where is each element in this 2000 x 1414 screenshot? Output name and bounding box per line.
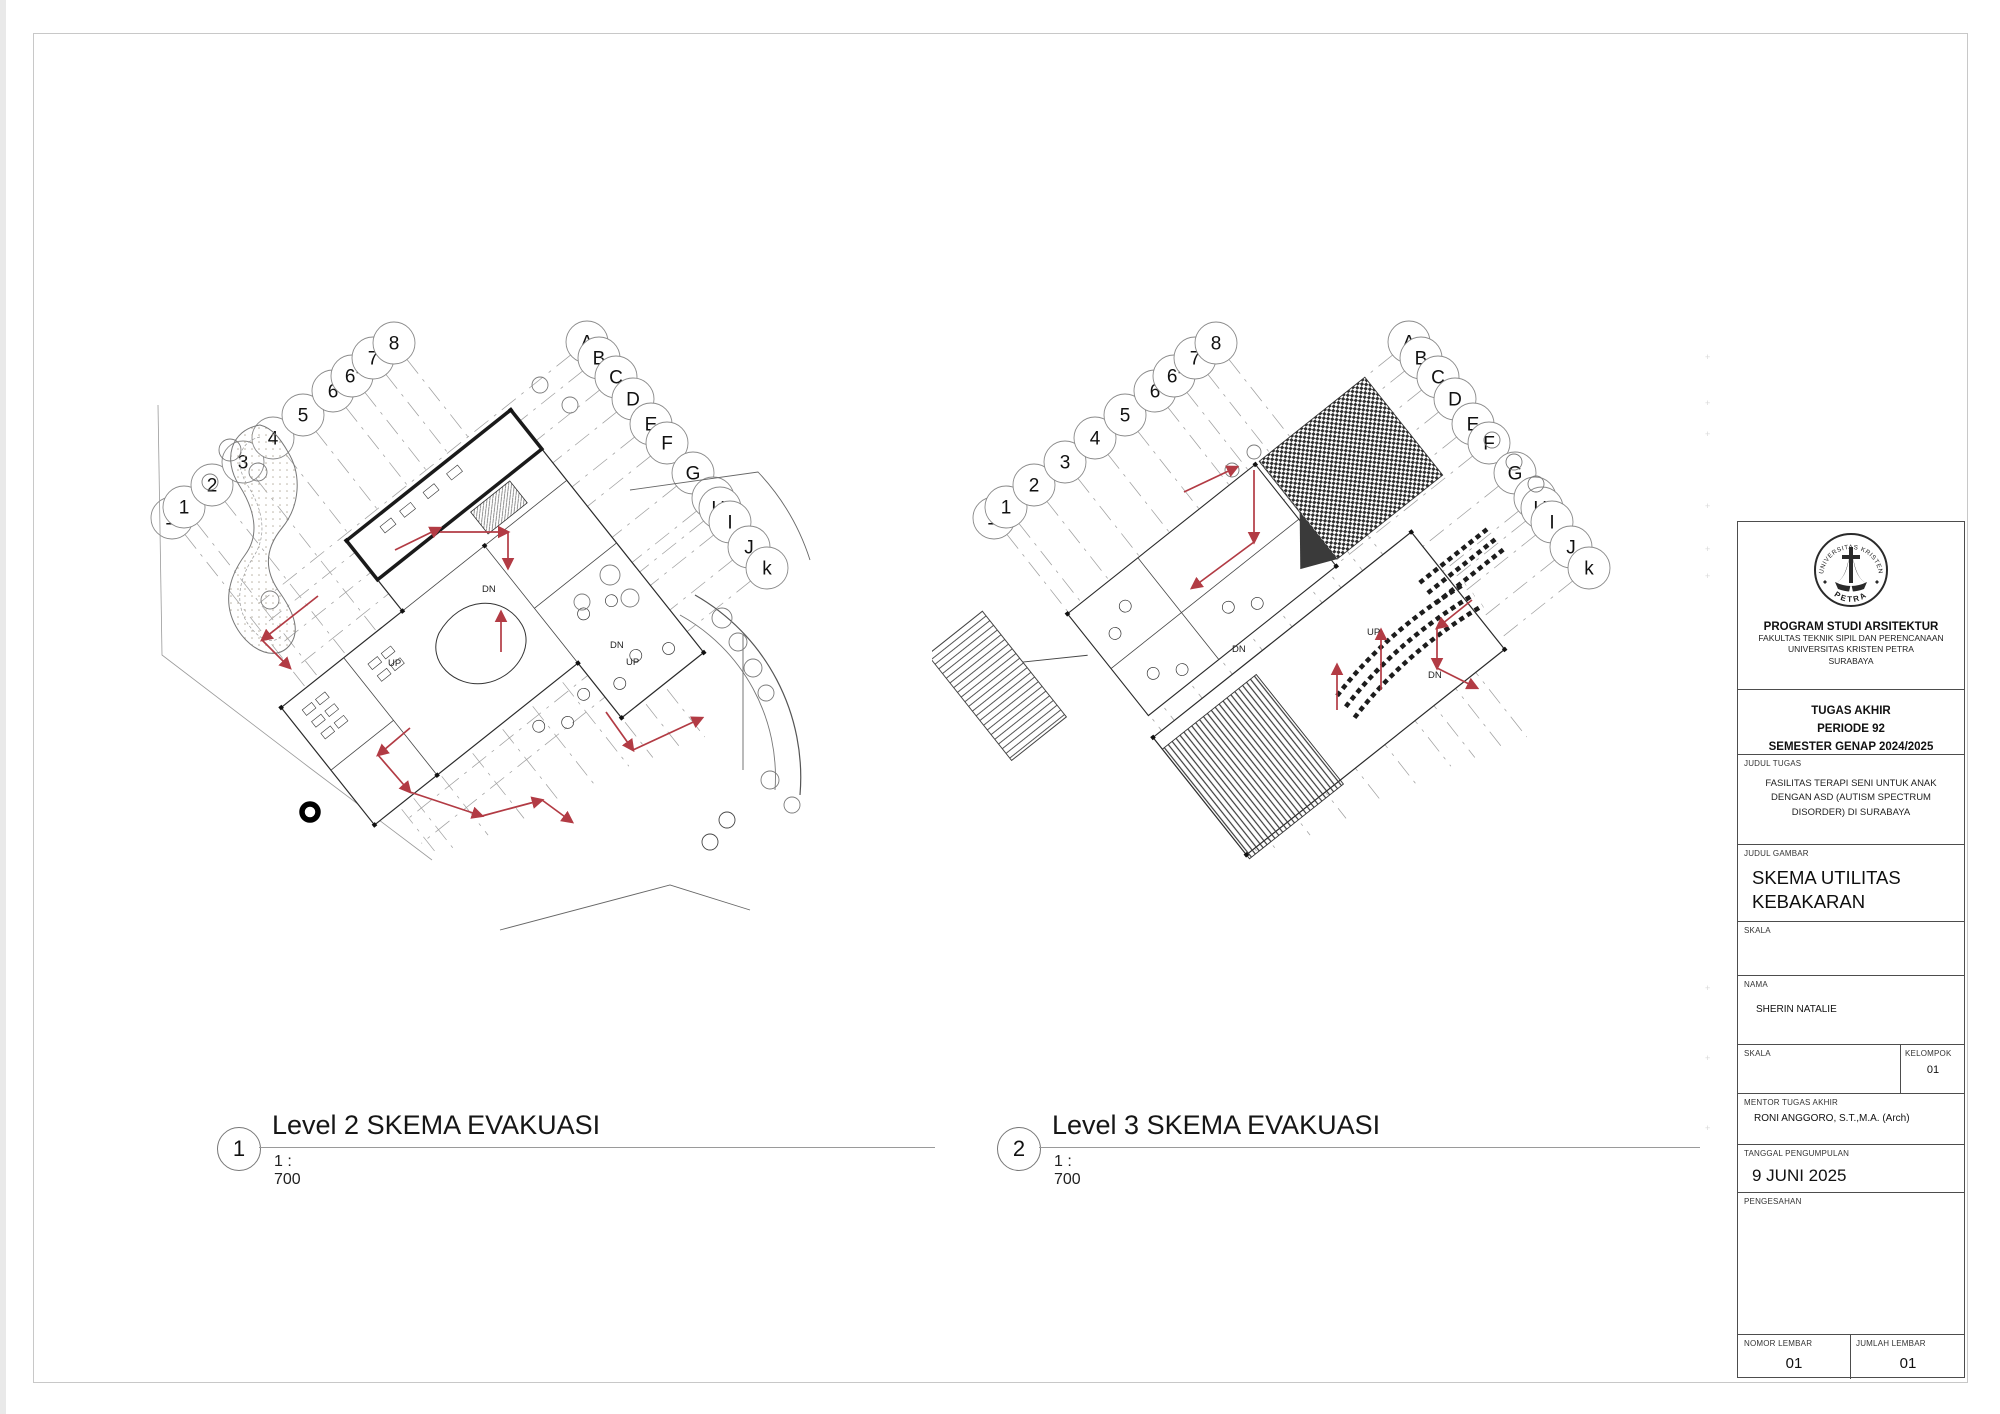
kelompok-value: 01 [1900,1058,1964,1076]
view-scale: 1 : 700 [1054,1153,1081,1189]
nama-section: NAMA SHERIN NATALIE [1738,975,1964,1044]
pengesahan-section: PENGESAHAN [1738,1192,1964,1334]
nama-label: NAMA [1738,976,1964,989]
fold-mark: + [1705,1053,1710,1063]
nama-value: SHERIN NATALIE [1738,989,1964,1015]
skala-label: SKALA [1738,922,1964,935]
view-title-text: Level 2 SKEMA EVAKUASI [272,1110,600,1141]
site-point-marker [302,804,318,820]
grid-bubble-label: I [1549,513,1554,534]
grid-bubble-label: 1 [179,498,190,519]
stair-label: UP [626,657,639,668]
level2-evacuation-plan-drawing: 1'1234566'78ABCDEFGHH'IJk [110,300,900,960]
nomor-lembar-value: 01 [1738,1348,1850,1372]
skala-kelompok-section: SKALA KELOMPOK 01 [1738,1044,1964,1093]
mentor-value: RONI ANGGORO, S.T.,M.A. (Arch) [1738,1107,1964,1124]
grid-bubble-label: 5 [298,406,309,427]
stair-label: DN [1428,670,1442,681]
lembar-section: NOMOR LEMBAR 01 JUMLAH LEMBAR 01 [1738,1334,1964,1379]
grid-bubble-label: F [661,434,673,455]
judul-gambar-value: SKEMA UTILITAS KEBAKARAN [1738,858,1964,913]
judul-gambar-label: JUDUL GAMBAR [1738,845,1964,858]
tanggal-label: TANGGAL PENGUMPULAN [1738,1145,1964,1158]
skala-section: SKALA [1738,921,1964,975]
page-edge-shadow [0,0,6,1414]
judul-tugas-label: JUDUL TUGAS [1738,755,1964,768]
stair-label: UP [388,658,401,669]
stair-label: DN [1232,644,1246,655]
grid-bubble-label: 3 [1060,453,1071,474]
tugas-akhir-section: TUGAS AKHIR PERIODE 92 SEMESTER GENAP 20… [1738,689,1964,754]
mentor-section: MENTOR TUGAS AKHIR RONI ANGGORO, S.T.,M.… [1738,1093,1964,1144]
view-number-bubble: 2 [997,1127,1041,1171]
grid-bubble-label: k [1584,559,1594,580]
skala2-label: SKALA [1738,1045,1900,1058]
tanggal-value: 9 JUNI 2025 [1738,1158,1964,1186]
universitas-line: UNIVERSITAS KRISTEN PETRA [1738,644,1964,655]
nomor-lembar-label: NOMOR LEMBAR [1738,1335,1850,1348]
level3-evacuation-plan-drawing: 1'1234566'78ABCDEFGHH'IJk [932,300,1722,960]
grid-bubble-label: 5 [1120,406,1131,427]
grid-bubble-label: 2 [207,476,218,497]
stair-label: DN [610,640,624,651]
stair-label: DN [482,584,496,595]
kelompok-label: KELOMPOK [1900,1045,1964,1058]
view-title-text: Level 3 SKEMA EVAKUASI [1052,1110,1380,1141]
title-underline [259,1147,935,1148]
title-block: UNIVERSITAS KRISTEN PETRA [1737,521,1965,1378]
judul-tugas-value: FASILITAS TERAPI SENI UNTUK ANAK DENGAN … [1738,768,1964,820]
judul-gambar-section: JUDUL GAMBAR SKEMA UTILITAS KEBAKARAN [1738,844,1964,921]
pengesahan-label: PENGESAHAN [1738,1193,1964,1206]
fold-mark: + [1705,983,1710,993]
fold-mark: + [1705,1123,1710,1133]
stair-label: UP [1367,627,1380,638]
grid-bubble-label: 4 [1090,429,1101,450]
grid-bubble-label: 2 [1029,476,1040,497]
university-logo: UNIVERSITAS KRISTEN PETRA [1738,530,1964,615]
title-underline [1039,1147,1700,1148]
fakultas-line: FAKULTAS TEKNIK SIPIL DAN PERENCANAAN [1738,633,1964,644]
semester-line: SEMESTER GENAP 2024/2025 [1738,739,1964,754]
titleblock-header: UNIVERSITAS KRISTEN PETRA [1738,522,1964,689]
drawing-sheet: + + + + + + + + + [0,0,2000,1414]
tanggal-section: TANGGAL PENGUMPULAN 9 JUNI 2025 [1738,1144,1964,1192]
judul-tugas-section: JUDUL TUGAS FASILITAS TERAPI SENI UNTUK … [1738,754,1964,844]
jumlah-lembar-label: JUMLAH LEMBAR [1850,1335,1964,1348]
view-scale: 1 : 700 [274,1153,301,1189]
grid-bubble-label: I [727,513,732,534]
kota-line: SURABAYA [1738,656,1964,667]
view-number-bubble: 1 [217,1127,261,1171]
jumlah-lembar-value: 01 [1850,1348,1964,1372]
tugas-akhir-line: TUGAS AKHIR [1738,703,1964,721]
grid-bubble-label: 1 [1001,498,1012,519]
periode-line: PERIODE 92 [1738,721,1964,739]
mentor-label: MENTOR TUGAS AKHIR [1738,1094,1964,1107]
program-studi-title: PROGRAM STUDI ARSITEKTUR [1738,621,1964,633]
grid-bubble-label: 8 [1211,334,1222,355]
grid-bubble-label: k [762,559,772,580]
grid-bubble-label: 8 [389,334,400,355]
